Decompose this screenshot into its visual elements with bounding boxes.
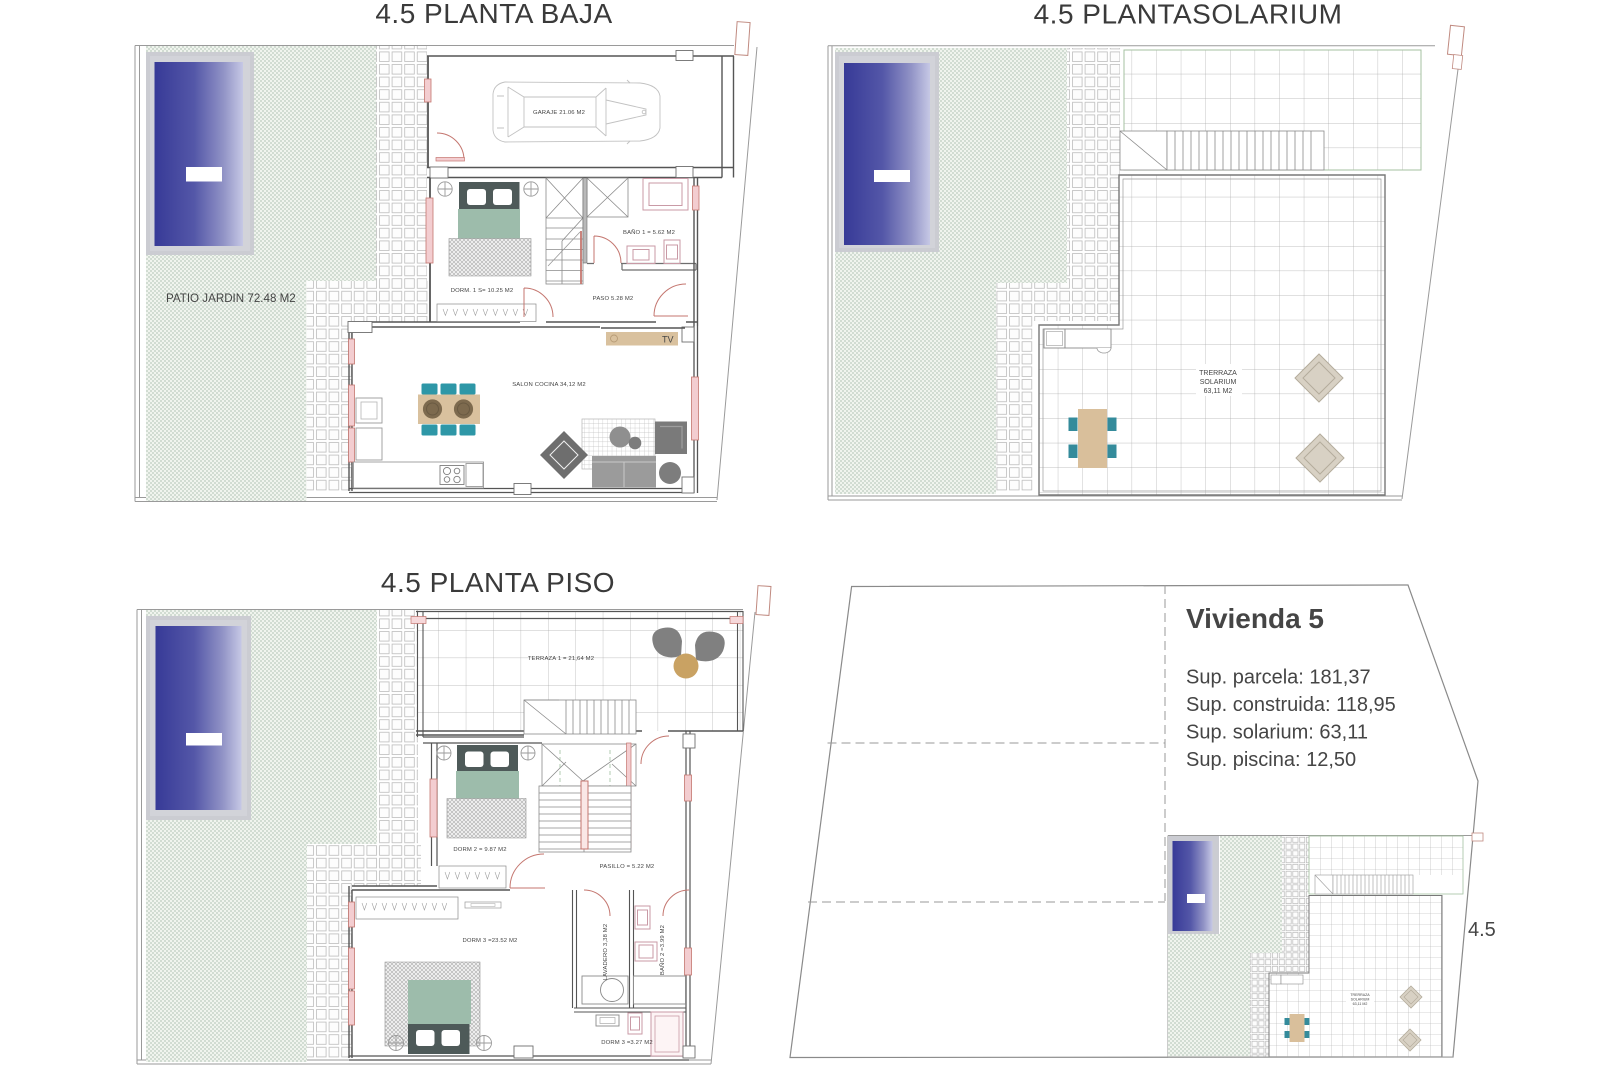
svg-text:SOLARIUM: SOLARIUM <box>1351 998 1370 1002</box>
svg-text:PASILLO = 5.22 M2: PASILLO = 5.22 M2 <box>600 864 655 870</box>
svg-text:TERRAZA 1 = 21,64 M2: TERRAZA 1 = 21,64 M2 <box>528 656 594 662</box>
svg-text:TRERRAZA: TRERRAZA <box>1199 370 1237 377</box>
svg-text:GARAJE 21.06 M2: GARAJE 21.06 M2 <box>533 110 585 116</box>
svg-text:Sup. parcela: 181,37: Sup. parcela: 181,37 <box>1186 667 1371 689</box>
svg-text:SALON COCINA 34,12 M2: SALON COCINA 34,12 M2 <box>512 382 586 388</box>
svg-text:SOLARIUM: SOLARIUM <box>1200 379 1237 386</box>
svg-text:DORM. 1 S= 10.25 M2: DORM. 1 S= 10.25 M2 <box>451 288 514 294</box>
svg-text:63,11 M2: 63,11 M2 <box>1204 388 1233 395</box>
svg-text:PATIO JARDIN 72.48 M2: PATIO JARDIN 72.48 M2 <box>166 292 296 305</box>
svg-text:Vivienda 5: Vivienda 5 <box>1186 603 1324 634</box>
svg-text:DORM 2 = 9.87 M2: DORM 2 = 9.87 M2 <box>453 847 506 853</box>
svg-text:TV: TV <box>662 335 674 345</box>
svg-text:BAÑO 2 =3.99 M2: BAÑO 2 =3.99 M2 <box>659 925 666 975</box>
svg-text:TRERRAZA: TRERRAZA <box>1350 993 1370 997</box>
svg-text:4.5 PLANTA BAJA: 4.5 PLANTA BAJA <box>375 0 612 29</box>
svg-text:4.5 PLANTA PISO: 4.5 PLANTA PISO <box>381 567 615 598</box>
svg-text:Sup. piscina: 12,50: Sup. piscina: 12,50 <box>1186 749 1356 771</box>
svg-text:LAVADERO 3,38 M2: LAVADERO 3,38 M2 <box>603 924 609 981</box>
svg-text:DORM 3 =23.52 M2: DORM 3 =23.52 M2 <box>463 938 518 944</box>
svg-text:4.5 PLANTASOLARIUM: 4.5 PLANTASOLARIUM <box>1034 0 1343 30</box>
svg-text:Sup. solarium: 63,11: Sup. solarium: 63,11 <box>1186 722 1368 744</box>
svg-text:4.5: 4.5 <box>1468 919 1496 941</box>
svg-text:BAÑO 1 = 5.62 M2: BAÑO 1 = 5.62 M2 <box>623 229 675 236</box>
svg-text:Sup. construida: 118,95: Sup. construida: 118,95 <box>1186 694 1396 716</box>
svg-text:PASO 5.28 M2: PASO 5.28 M2 <box>593 296 634 302</box>
svg-text:63,11 M2: 63,11 M2 <box>1353 1002 1368 1006</box>
svg-text:DORM 3 =3.27 M2: DORM 3 =3.27 M2 <box>601 1040 653 1046</box>
